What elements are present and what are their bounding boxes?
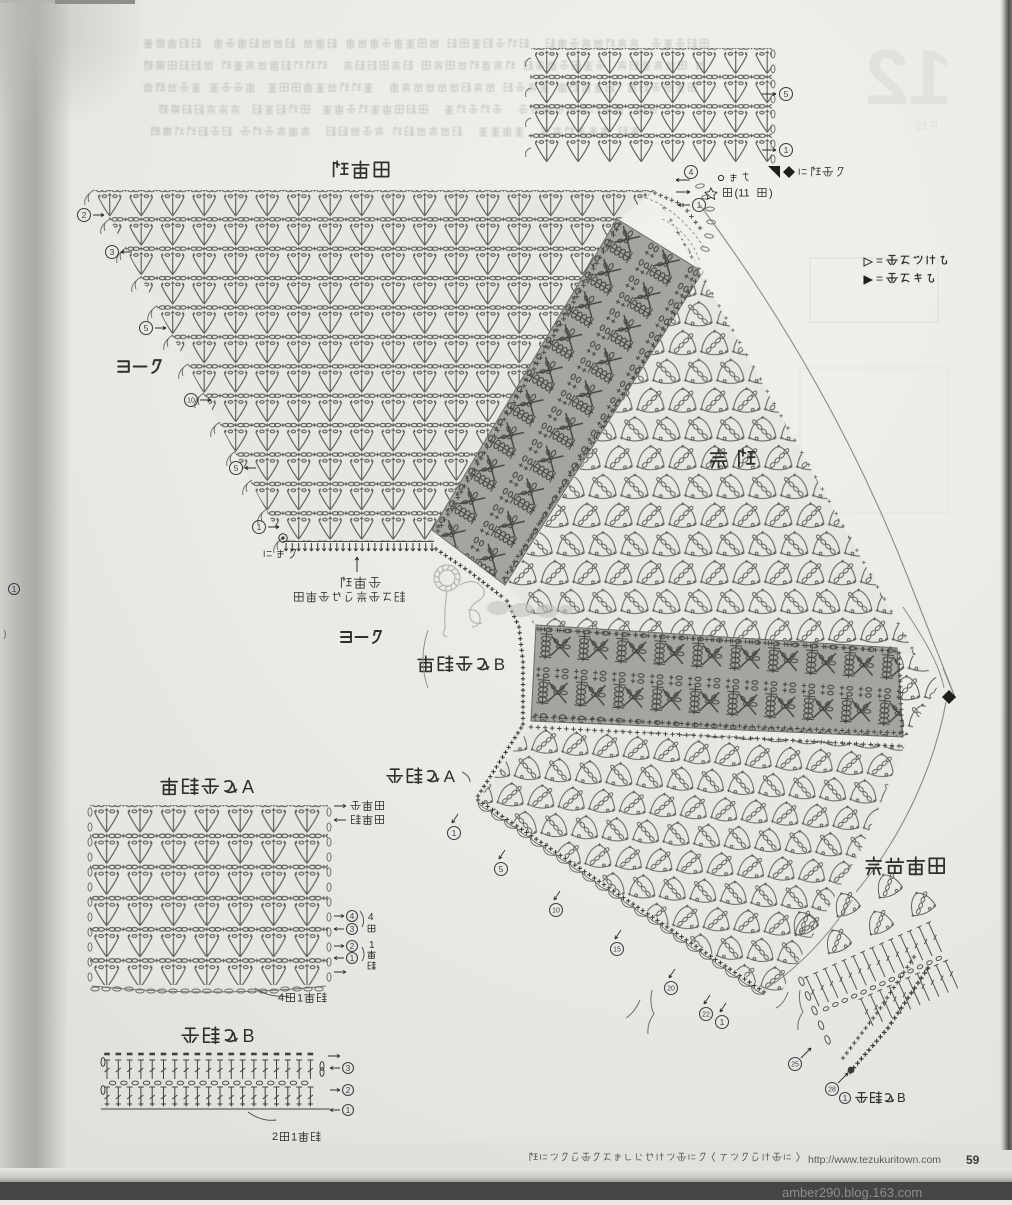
svg-text:A: A xyxy=(444,767,456,786)
svg-text:2: 2 xyxy=(272,1131,278,1143)
svg-text:1: 1 xyxy=(369,940,375,951)
svg-text:15: 15 xyxy=(613,947,621,954)
svg-text:1: 1 xyxy=(843,1093,848,1103)
svg-text:A: A xyxy=(242,777,254,797)
svg-text:25: 25 xyxy=(791,1062,799,1069)
svg-text:5: 5 xyxy=(784,89,789,99)
svg-text:B: B xyxy=(494,655,505,674)
svg-text:3: 3 xyxy=(110,247,115,257)
svg-text:P.15: P.15 xyxy=(915,119,938,133)
svg-text:2: 2 xyxy=(350,941,355,951)
svg-text:4: 4 xyxy=(278,992,284,1004)
svg-text:10: 10 xyxy=(187,398,195,405)
svg-text:=: = xyxy=(876,253,883,267)
svg-text:http://www.tezukuritown.com: http://www.tezukuritown.com xyxy=(808,1154,941,1166)
svg-text:5: 5 xyxy=(144,323,149,333)
svg-text:2: 2 xyxy=(346,1085,351,1095)
svg-text:2: 2 xyxy=(82,210,87,220)
svg-text:3: 3 xyxy=(350,924,355,934)
svg-text:amber290.blog.163.com: amber290.blog.163.com xyxy=(782,1185,922,1200)
svg-text:4: 4 xyxy=(689,167,694,177)
svg-text:1: 1 xyxy=(346,1105,351,1115)
svg-text:59: 59 xyxy=(966,1153,980,1167)
svg-text:B: B xyxy=(897,1090,906,1105)
svg-text:22: 22 xyxy=(702,1012,710,1019)
svg-text:1: 1 xyxy=(257,522,262,532)
svg-text:): ) xyxy=(769,188,773,200)
svg-text:1: 1 xyxy=(350,953,355,963)
svg-text:1: 1 xyxy=(697,200,702,210)
svg-text:5: 5 xyxy=(234,463,239,473)
svg-text:(11: (11 xyxy=(735,188,750,200)
svg-text:3: 3 xyxy=(346,1063,351,1073)
svg-text:4: 4 xyxy=(368,912,374,923)
svg-text:20: 20 xyxy=(667,986,675,993)
svg-text:10: 10 xyxy=(552,908,560,915)
svg-text:1: 1 xyxy=(452,828,457,838)
svg-text:=: = xyxy=(876,271,883,285)
svg-text:1: 1 xyxy=(720,1017,725,1027)
svg-text:B: B xyxy=(243,1026,255,1046)
svg-text:28: 28 xyxy=(828,1087,836,1094)
svg-text:5: 5 xyxy=(499,864,504,874)
svg-text:4: 4 xyxy=(350,911,355,921)
svg-text:1: 1 xyxy=(297,993,303,1005)
svg-text:12: 12 xyxy=(865,33,952,121)
svg-text:1: 1 xyxy=(291,1132,297,1144)
svg-text:1: 1 xyxy=(12,584,17,594)
svg-text:1: 1 xyxy=(784,145,789,155)
